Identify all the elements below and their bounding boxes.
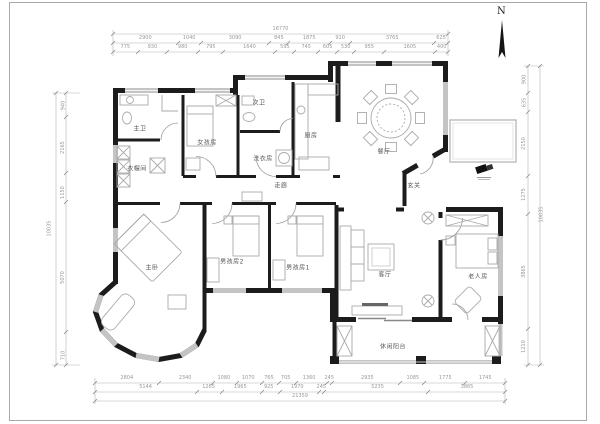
room-label-kitchen: 厨房: [304, 131, 317, 140]
dim-label: 980: [167, 45, 198, 50]
dim-label: 3865: [522, 265, 527, 278]
room-label-living: 客厅: [378, 270, 391, 279]
dim-label: 3865: [429, 385, 505, 390]
ac-platform: [450, 120, 516, 162]
dim-label: 2900: [113, 36, 178, 41]
dim-bottom-total: 21359: [95, 394, 505, 399]
dim-label: 245: [325, 376, 335, 381]
dim-label: 2150: [522, 137, 527, 150]
dim-label: 1360: [294, 376, 325, 381]
dim-label: 3090: [201, 36, 270, 41]
dim-label: 930: [138, 45, 168, 50]
dim-label: 1875: [288, 36, 330, 41]
dim-label: 940: [61, 101, 66, 111]
room-label-corridor: 走廊: [274, 181, 287, 190]
dim-label: 1080: [212, 376, 236, 381]
dim-top-total: 16770: [113, 27, 448, 32]
dim-chain-bottom-2: 5144 1265 1965 925 1970 245 5235 3865: [95, 385, 505, 390]
dim-label: 1965: [221, 385, 260, 390]
north-label: N: [497, 6, 506, 17]
dim-label: 1210: [522, 341, 527, 354]
dim-left-total: 10035: [47, 221, 52, 237]
dim-label: 1640: [223, 45, 275, 50]
dim-label: 775: [113, 45, 138, 50]
room-label-laundry: 洗衣房: [253, 154, 273, 163]
dim-label: 845: [269, 36, 288, 41]
dim-label: 635: [522, 97, 527, 107]
dim-label: 5235: [326, 385, 429, 390]
dim-label: 595: [276, 45, 295, 50]
dim-label: 910: [330, 36, 350, 41]
room-label-master-bedroom: 主卧: [145, 263, 158, 272]
dim-label: 3765: [350, 36, 434, 41]
dimension-ticks: [54, 32, 542, 403]
logo-stamp-icon: [475, 162, 493, 180]
room-label-girls-room: 女孩房: [197, 138, 217, 147]
dim-chain-top-b: 2900 1040 3090 845 1875 910 3765 625: [113, 36, 448, 41]
dim-label: 1970: [278, 385, 317, 390]
room-label-boys-room-1: 男孩房1: [286, 263, 310, 272]
dim-chain-bottom-1: 2804 2340 1080 1070 765 705 1360 245 293…: [95, 376, 505, 381]
dim-label: 1040: [178, 36, 201, 41]
dim-label: 5144: [95, 385, 196, 390]
dim-label: 625: [434, 36, 448, 41]
floorplan-drawing: [0, 0, 600, 424]
north-arrow-icon: [499, 20, 506, 58]
dim-label: 2804: [95, 376, 159, 381]
dim-label: 795: [198, 45, 223, 50]
dim-chain-right: 900 635 2150 1275 3865 1210: [520, 66, 529, 365]
dim-label: 1150: [61, 186, 66, 199]
dim-label: 710: [61, 351, 66, 361]
room-label-boys-room-2: 男孩房2: [220, 257, 244, 266]
room-label-dining: 餐厅: [377, 147, 390, 156]
dim-label: 1070: [236, 376, 260, 381]
dim-right-total: 10035: [539, 207, 544, 223]
dim-label: 925: [260, 385, 278, 390]
dim-label: 2340: [159, 376, 212, 381]
room-label-elders-room: 老人房: [468, 272, 488, 281]
dim-label: 5070: [61, 271, 66, 284]
dim-label: 2165: [61, 141, 66, 154]
dim-label: 400: [435, 45, 448, 50]
dim-label: 605: [318, 45, 337, 50]
dim-label: 1745: [465, 376, 505, 381]
dim-chain-left: 940 2165 1150 5070 710: [59, 93, 68, 365]
floor-plan-canvas: 主卫 衣帽间 女孩房 次卫 洗衣房 厨房 餐厅 玄关 走廊 主卧 男孩房2 男孩…: [0, 0, 600, 424]
dim-label: 765: [260, 376, 277, 381]
dim-label: 1775: [425, 376, 465, 381]
dim-chain-top-c: 775 930 980 795 1640 595 745 605 530 955…: [113, 45, 448, 50]
dim-label: 1265: [196, 385, 221, 390]
room-label-cloakroom: 衣帽间: [127, 164, 147, 173]
dim-label: 745: [294, 45, 318, 50]
room-label-foyer: 玄关: [407, 181, 420, 190]
dim-label: 1275: [522, 188, 527, 201]
dim-label: 245: [317, 385, 327, 390]
room-label-master-bath: 主卫: [133, 124, 146, 133]
dim-label: 530: [337, 45, 354, 50]
dim-label: 1085: [401, 376, 426, 381]
dim-label: 900: [522, 75, 527, 85]
room-label-second-bath: 次卫: [252, 98, 265, 107]
dim-label: 2935: [334, 376, 401, 381]
room-label-balcony: 休闲阳台: [380, 342, 406, 351]
dim-label: 705: [278, 376, 294, 381]
dim-label: 955: [354, 45, 384, 50]
dim-label: 1605: [384, 45, 435, 50]
